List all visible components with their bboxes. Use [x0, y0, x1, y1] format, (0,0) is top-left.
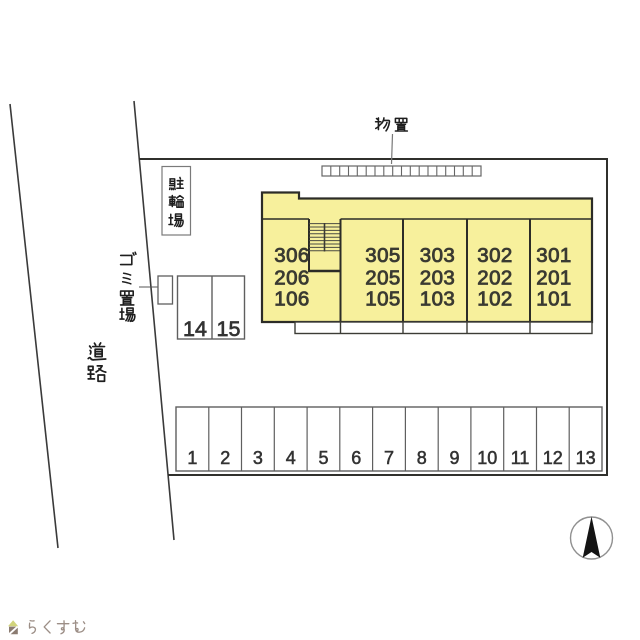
svg-text:102: 102 [477, 288, 512, 311]
svg-text:101: 101 [536, 288, 571, 311]
svg-text:5: 5 [318, 448, 328, 468]
svg-text:9: 9 [449, 448, 459, 468]
svg-text:306: 306 [274, 244, 309, 267]
svg-text:203: 203 [420, 267, 455, 290]
svg-text:103: 103 [420, 288, 455, 311]
svg-text:105: 105 [365, 288, 400, 311]
svg-text:13: 13 [576, 448, 596, 468]
svg-text:305: 305 [365, 244, 400, 267]
svg-text:1: 1 [187, 448, 197, 468]
svg-text:6: 6 [351, 448, 361, 468]
svg-text:106: 106 [274, 288, 309, 311]
svg-text:8: 8 [417, 448, 427, 468]
svg-text:12: 12 [543, 448, 563, 468]
svg-text:201: 201 [536, 267, 571, 290]
svg-text:15: 15 [217, 317, 241, 341]
svg-text:11: 11 [511, 448, 530, 468]
svg-text:4: 4 [286, 448, 296, 468]
svg-text:14: 14 [183, 317, 207, 341]
svg-text:7: 7 [384, 448, 394, 468]
svg-text:3: 3 [253, 448, 263, 468]
svg-text:303: 303 [420, 244, 455, 267]
svg-text:10: 10 [477, 448, 497, 468]
svg-text:202: 202 [477, 267, 512, 290]
svg-text:2: 2 [220, 448, 230, 468]
svg-text:206: 206 [274, 267, 309, 290]
svg-text:302: 302 [477, 244, 512, 267]
svg-text:301: 301 [536, 244, 571, 267]
svg-text:205: 205 [365, 267, 400, 290]
